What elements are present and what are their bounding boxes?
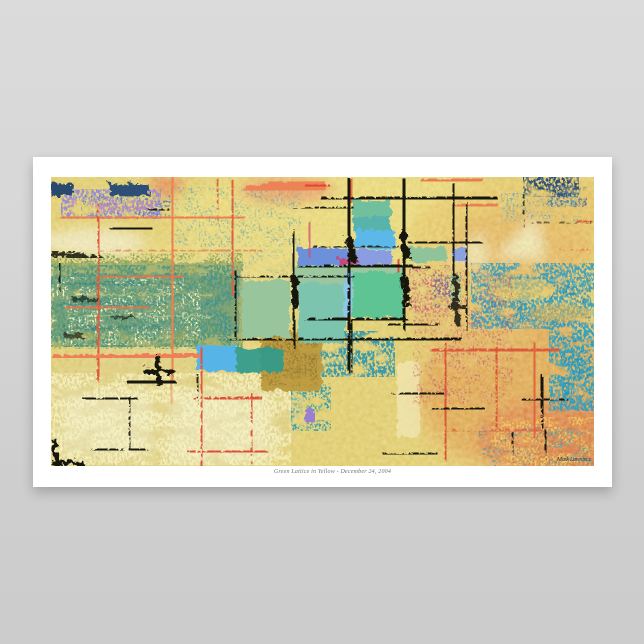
svg-text:Mark Lawrence: Mark Lawrence: [556, 457, 592, 463]
